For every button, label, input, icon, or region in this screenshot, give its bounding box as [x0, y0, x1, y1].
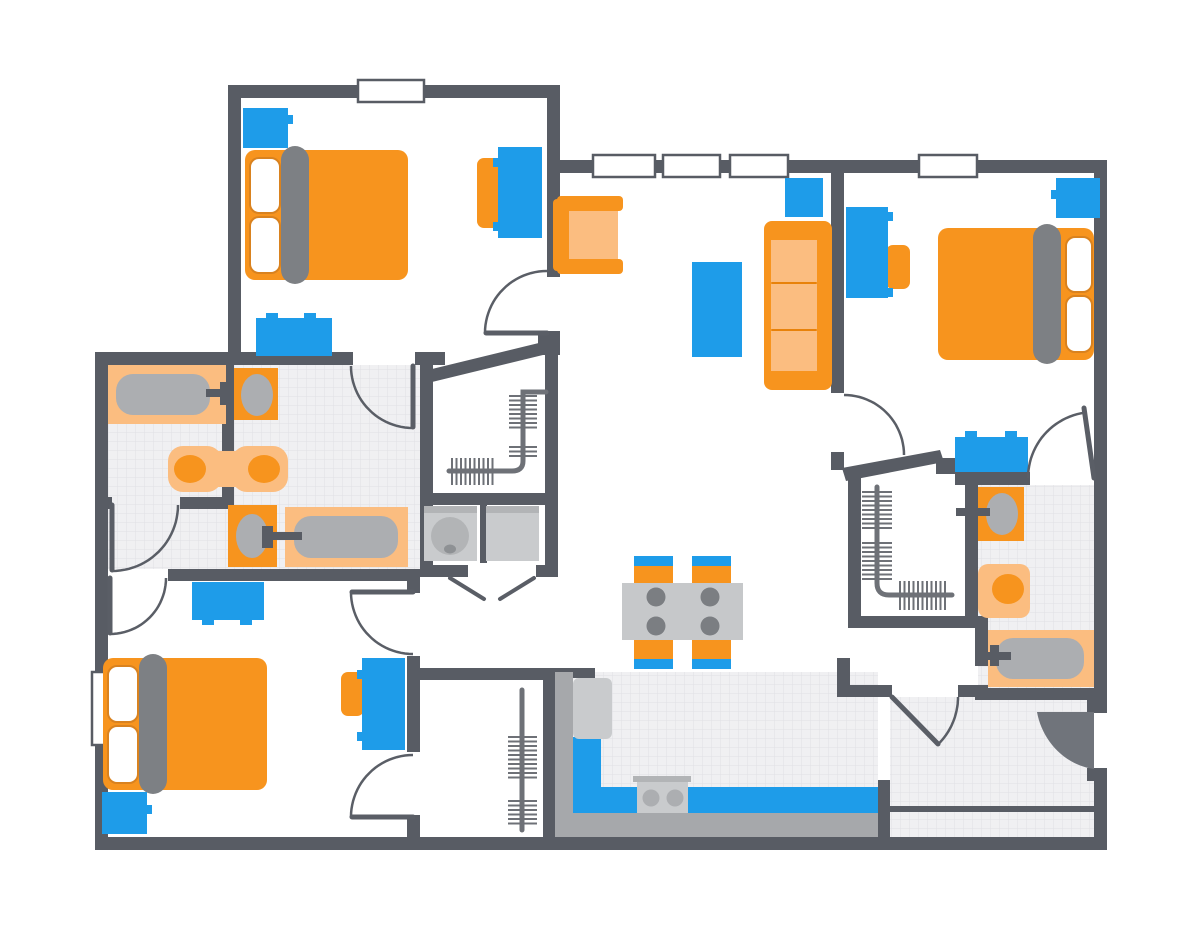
bathtub: [116, 374, 210, 415]
wall-frontdoor-stub-bottom: [1087, 768, 1107, 781]
desk: [846, 207, 888, 298]
wall-kitchen-left: [543, 668, 556, 838]
sink-bowl: [248, 455, 280, 483]
dining-chair-seat: [634, 640, 673, 659]
door-arc-bed2: [1028, 413, 1085, 478]
layer-bathrooms: [108, 365, 1094, 687]
bed1-headboard: [281, 146, 309, 284]
nightstand: [243, 108, 288, 148]
dryer: [486, 506, 539, 561]
stove-burner-left: [643, 790, 660, 807]
washer-band: [424, 506, 477, 513]
plate: [701, 617, 720, 636]
wall-bath-mid-left: [95, 497, 112, 509]
sofa-cushions: [771, 240, 817, 371]
window-living-2: [663, 155, 720, 177]
dining-chair-back: [634, 659, 673, 669]
door-arc-bed3-hall: [351, 592, 413, 654]
window-bed1: [358, 80, 424, 102]
desk: [498, 147, 542, 238]
desk-knob: [493, 158, 498, 167]
faucet: [966, 501, 976, 523]
door-arc-bed1: [485, 271, 547, 333]
wall-bed3-top: [168, 569, 420, 581]
sink-bowl: [174, 455, 206, 483]
tv-console: [785, 178, 823, 217]
armchair-cushion: [569, 211, 618, 259]
door-leaf-bed2: [1084, 408, 1094, 478]
dresser: [192, 582, 264, 620]
toilet-bowl: [241, 374, 273, 416]
stove-backbar: [633, 776, 691, 782]
door-arc-bed3: [110, 578, 166, 634]
nightstand: [102, 792, 147, 834]
wall-bed3-right-a: [407, 569, 420, 593]
window-living-3: [730, 155, 788, 177]
bed1-pillow: [250, 158, 280, 213]
layer-dining: [622, 556, 743, 669]
wall-hall-angled: [842, 450, 944, 481]
sink-bowl: [992, 574, 1024, 604]
desk-knob: [357, 732, 362, 741]
wall-bottom: [95, 837, 1107, 850]
wall-closet-right: [545, 352, 558, 577]
closet-r-hangers-b: [862, 543, 892, 579]
dining-chair-seat: [692, 566, 731, 585]
washer-drum-dot: [444, 545, 456, 554]
dresser-knob: [304, 313, 316, 318]
plate: [647, 588, 666, 607]
nightstand-knob: [288, 115, 293, 124]
plate: [647, 617, 666, 636]
bed2-headboard: [1033, 224, 1061, 364]
window-living-1: [593, 155, 655, 177]
wall-closet-angled: [432, 341, 547, 382]
door-arc-hallway: [844, 395, 904, 455]
wall-bath-mid: [180, 497, 234, 509]
nightstand-knob: [1051, 190, 1056, 199]
wall-closet-r-left: [848, 478, 861, 628]
faucet: [990, 645, 999, 666]
desk-knob: [888, 212, 893, 221]
armchair-arm: [557, 196, 623, 211]
desk-knob: [357, 670, 362, 679]
closet-door-leaf: [500, 578, 534, 599]
closet-door-leaf: [450, 578, 484, 599]
countertop-bottom: [573, 787, 878, 813]
coffee-table: [692, 262, 742, 357]
wall-entry-threshold: [886, 806, 1094, 812]
dresser: [256, 318, 332, 356]
bed2-pillow: [1066, 296, 1092, 352]
dresser: [955, 437, 1028, 472]
door-arc-bed3-closet: [351, 755, 413, 817]
dining-chair-back: [692, 556, 731, 566]
closet-r-hangers-a: [862, 492, 892, 528]
fridge: [573, 678, 612, 739]
faucet: [262, 526, 273, 548]
counter-base-bottom: [555, 812, 878, 837]
wall-living-divider-stub: [831, 452, 844, 470]
wall-living-divider: [831, 173, 844, 393]
closet1-rod: [449, 392, 546, 471]
wall-washer-bottom-left: [420, 565, 468, 577]
dresser-knob: [202, 620, 214, 625]
desk: [362, 658, 405, 750]
desk-knob: [493, 222, 498, 231]
dresser-knob: [1005, 431, 1017, 437]
wall-left-upper: [95, 352, 108, 672]
armchair-arm: [557, 259, 623, 274]
toilet-bowl: [986, 493, 1018, 535]
plate: [701, 588, 720, 607]
dresser-knob: [240, 620, 252, 625]
wall-washer-bottom-right: [536, 565, 558, 577]
wall-hall-a-bottom: [412, 668, 545, 680]
dresser-knob: [266, 313, 278, 318]
wall-bath-top-stub: [415, 352, 445, 365]
dining-chair-back: [634, 556, 673, 566]
wall-right-upper: [1094, 160, 1107, 712]
dining-chair-seat: [634, 566, 673, 585]
bed1-pillow: [250, 217, 280, 273]
wall-washer-top: [433, 493, 545, 505]
desk-chair: [886, 245, 910, 289]
window-bed2: [919, 155, 977, 177]
stove-burner-right: [667, 790, 684, 807]
bed3-pillow: [108, 726, 138, 783]
wall-hall-joint: [936, 458, 958, 474]
wall-bath-right-bottom: [975, 688, 1094, 700]
wall-washer-divider: [480, 505, 487, 563]
floor-plan: [0, 0, 1200, 927]
bed3-headboard: [139, 654, 167, 794]
bed2-pillow: [1066, 237, 1092, 292]
dining-table: [622, 583, 743, 640]
bed3-pillow: [108, 666, 138, 722]
dining-chair-back: [692, 659, 731, 669]
dryer-band: [486, 506, 539, 513]
wall-closet-r-bottom: [848, 616, 965, 628]
wall-frontdoor-stub-top: [1087, 700, 1107, 713]
faucet: [220, 382, 231, 405]
bathtub: [294, 516, 398, 558]
wall-hall-entry-h: [837, 685, 892, 697]
wall-bed1-left: [228, 85, 241, 365]
floor-plan-svg: [0, 0, 1200, 927]
nightstand: [1056, 178, 1100, 218]
desk-knob: [888, 288, 893, 297]
wall-bed3-top-left: [95, 569, 108, 581]
dining-chair-seat: [692, 640, 731, 659]
dresser-knob: [965, 431, 977, 437]
wall-dresser-tr: [955, 472, 1030, 485]
nightstand-knob: [147, 805, 152, 814]
